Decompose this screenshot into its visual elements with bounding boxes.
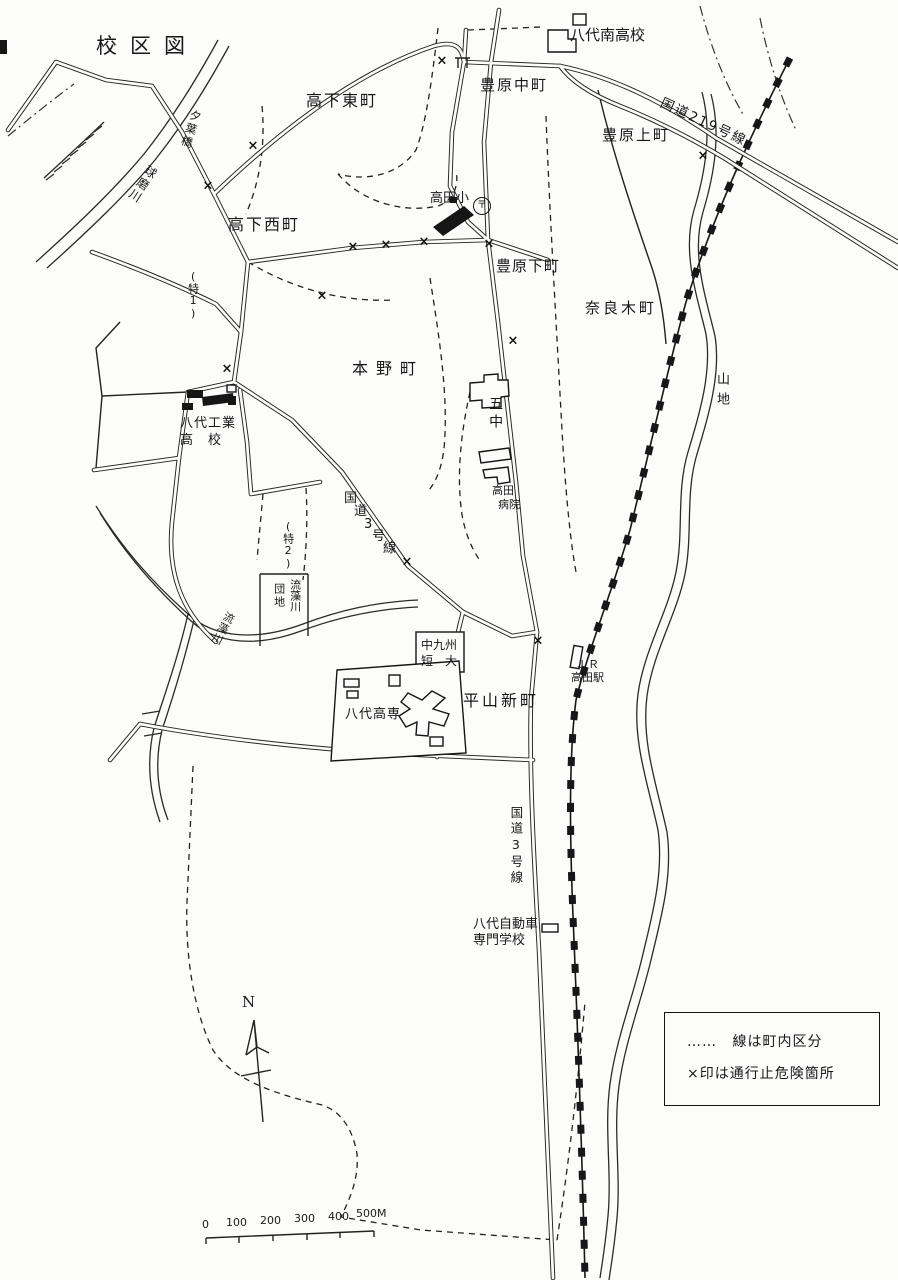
legend-dotted-symbol: …… (687, 1034, 717, 1050)
hazard-x-mark: × (698, 149, 709, 164)
town-koge-nishi: 高下西町 (228, 216, 300, 234)
north-arrow (241, 1020, 271, 1122)
route3-south-label: 国道3号線 (508, 806, 522, 886)
hazard-x-mark: × (484, 237, 495, 252)
town-toyohara-kami: 豊原上町 (602, 127, 670, 144)
scale-tick-200: 200 (260, 1214, 281, 1227)
tandai-line1: 中九州 (421, 639, 457, 653)
scale-tick-400: 400 (328, 1210, 349, 1223)
legend-boundary-text: 線は町内区分 (732, 1034, 822, 1050)
hazard-x-mark: × (419, 235, 430, 250)
scale-bar (206, 1231, 374, 1244)
hazard-x-mark: × (248, 139, 259, 154)
buildings (182, 14, 586, 932)
scale-tick-300: 300 (294, 1212, 315, 1225)
hazard-x-mark: × (381, 238, 392, 253)
hazard-x-mark: × (437, 54, 448, 69)
map-title: 校区図 (96, 34, 198, 58)
river-kuma (36, 40, 229, 268)
school-kosen: 八代高専 (345, 708, 401, 723)
school-minami-high: 八代南高校 (570, 27, 645, 44)
school-kogyo-line2: 高 校 (180, 434, 222, 449)
hazard-x-mark: × (317, 289, 328, 304)
hospital-line2: 病院 (498, 499, 520, 512)
hospital-building-2 (483, 467, 510, 484)
hospital-building-1 (479, 448, 511, 463)
town-koge-higashi: 高下東町 (306, 92, 378, 110)
route3-diag-char-4: 線 (383, 542, 396, 557)
tandai-line2: 短 大 (421, 655, 457, 669)
boundary-dashdot-topleft (8, 84, 74, 136)
hospital-line1: 高田 (492, 485, 514, 498)
school-gochu: 五中 (487, 396, 503, 432)
town-toyohara-naka: 豊原中町 (480, 77, 548, 94)
mountain-label: 山地 (713, 372, 728, 412)
jidosha-school-building (542, 924, 558, 932)
minami-high-building-small (573, 14, 586, 25)
post-office-icon: 〒 (473, 197, 491, 215)
school-takada-elem: 高田小 (430, 192, 469, 207)
toku1-label: (特1) (186, 270, 199, 320)
legend-box: …… 線は町内区分 ×印は通行止危険箇所 (664, 1012, 880, 1106)
station-line1: ＪＲ (575, 659, 601, 672)
toku2-label: (特2) (281, 520, 294, 570)
scale-tick-100: 100 (226, 1216, 247, 1229)
danchi-label-right: 流藻川 (288, 579, 301, 612)
school-kogyo-line1: 八代工業 (180, 417, 236, 432)
jidosha-line1: 八代自動車 (473, 918, 538, 933)
hazard-x-mark: × (222, 362, 233, 377)
jidosha-line2: 専門学校 (473, 934, 525, 949)
scale-tick-500: 500M (356, 1207, 387, 1220)
scan-artifact (0, 40, 7, 54)
town-toyohara-shimo: 豊原下町 (496, 258, 560, 275)
legend-xmark-text: ×印は通行止危険箇所 (687, 1063, 879, 1083)
hazard-x-mark: × (402, 555, 413, 570)
hazard-x-mark: × (348, 240, 359, 255)
hazard-x-mark: × (533, 634, 544, 649)
town-motono: 本野町 (352, 360, 424, 378)
scale-tick-0: 0 (202, 1218, 209, 1231)
kogyo-high-building (187, 390, 203, 398)
hazard-x-mark: × (203, 179, 214, 194)
station-line2: 高田駅 (571, 672, 604, 685)
town-naragi: 奈良木町 (585, 300, 657, 317)
danchi-label-left: 団地 (272, 583, 285, 609)
hazard-x-mark: × (508, 334, 519, 349)
school-district-map: 校区図 …… 線は町内区分 ×印は通行止危険箇所 高下東町 豊原中町 豊原上町 … (0, 0, 898, 1280)
north-label: N (242, 994, 255, 1011)
town-hirayama: 平山新町 (463, 692, 539, 710)
